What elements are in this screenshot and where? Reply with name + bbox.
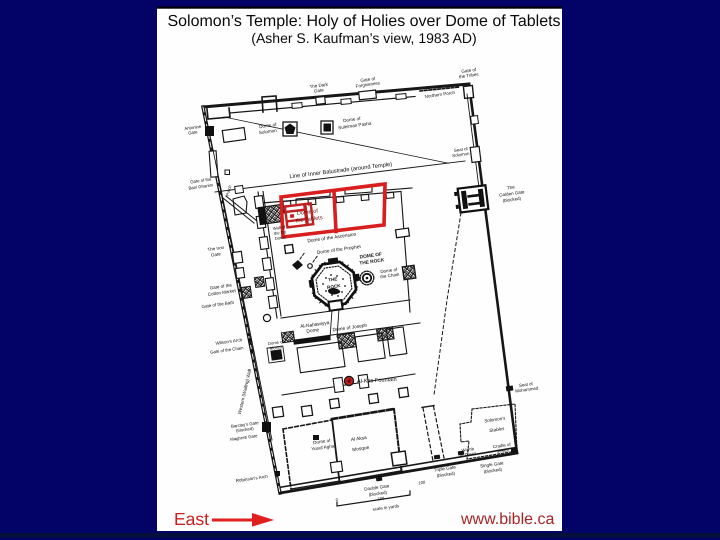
svg-text:East: East <box>174 509 209 529</box>
svg-text:www.bible.ca: www.bible.ca <box>460 511 554 528</box>
svg-text:190: 190 <box>377 495 385 501</box>
svg-text:Solomon’s Temple: Holy of Holi: Solomon’s Temple: Holy of Holies over Do… <box>167 13 560 30</box>
svg-text:(Asher S. Kaufman’s view, 1983: (Asher S. Kaufman’s view, 1983 AD) <box>251 30 476 46</box>
svg-text:100: 100 <box>418 479 426 485</box>
